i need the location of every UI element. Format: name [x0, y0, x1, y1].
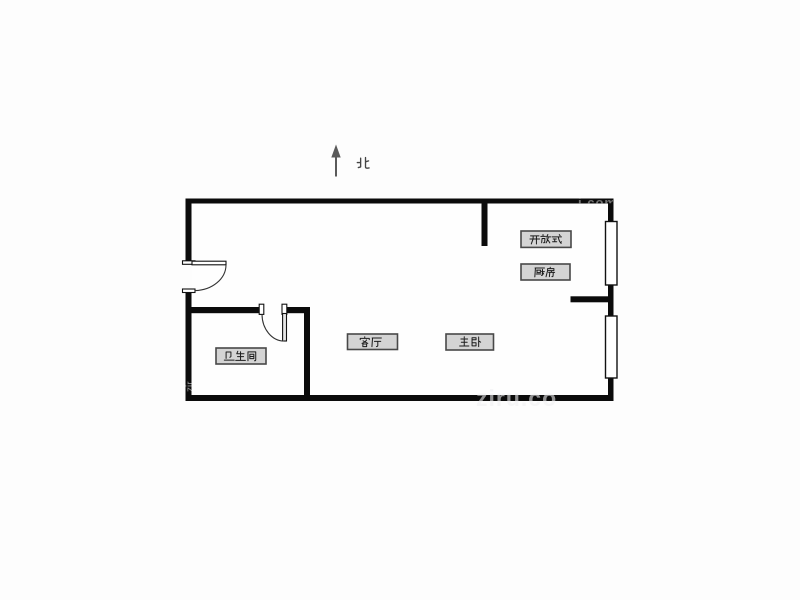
svg-text:ziru.co: ziru.co: [476, 385, 557, 411]
svg-text:zir: zir: [185, 381, 196, 392]
